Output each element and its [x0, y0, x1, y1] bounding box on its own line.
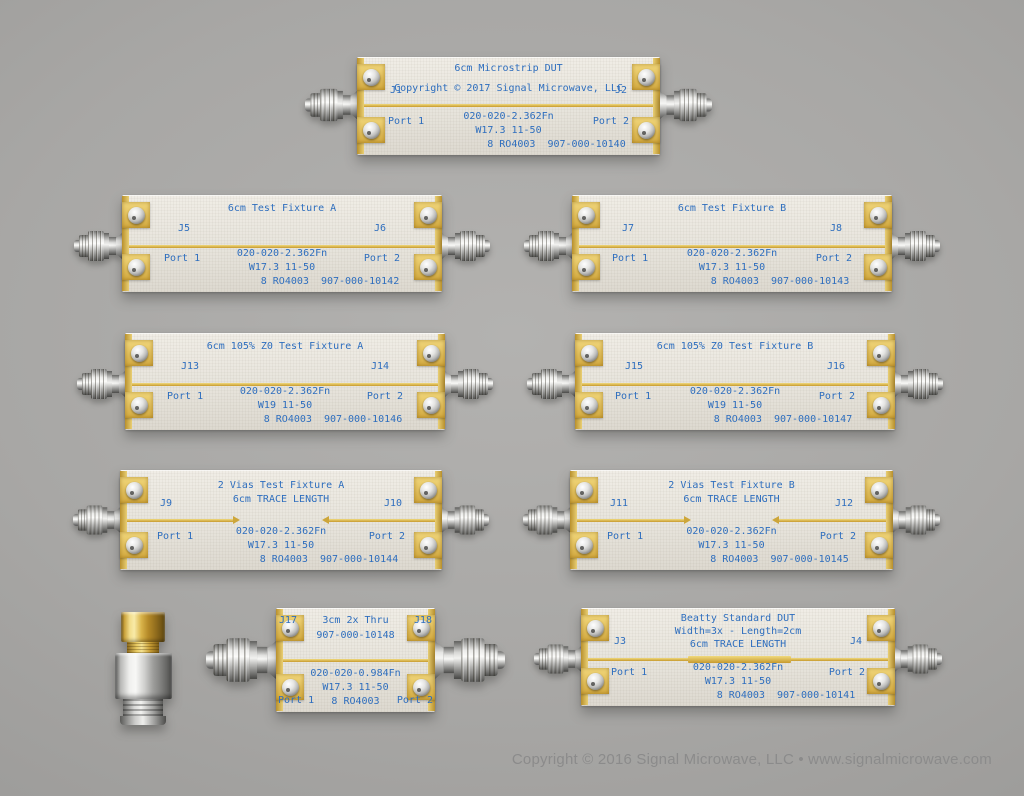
connector-tip — [929, 373, 938, 395]
material-serial: 8 RO4003 907-000-10140 — [405, 139, 708, 150]
jack-label-right: J4 — [850, 636, 862, 647]
connector-barrel — [913, 369, 929, 399]
board-title: 6cm 105% Z0 Test Fixture B — [575, 341, 895, 352]
material-serial: 8 RO4003 907-000-10146 — [173, 414, 493, 425]
connector-barrel — [461, 638, 484, 682]
connector-tip — [926, 509, 935, 531]
material-serial: 8 RO4003 907-000-10144 — [168, 554, 490, 565]
test-fixture-assembly: 6cm Microstrip DUT Copyright © 2017 Sign… — [305, 57, 712, 155]
coax-connector-right — [435, 638, 505, 682]
width-code: W17.3 11-50 — [357, 125, 660, 136]
connector-tip — [79, 235, 88, 257]
part-number: 020-020-2.362Fn — [122, 248, 442, 259]
adapter-gold-hex-nut — [121, 612, 165, 642]
jack-label-left: J15 — [625, 361, 643, 372]
coax-connector-left — [534, 644, 581, 673]
product-photo-scene: Copyright © 2016 Signal Microwave, LLC •… — [0, 0, 1024, 796]
coax-connector-right — [893, 505, 940, 534]
test-fixture-assembly: 2 Vias Test Fixture B 6cm TRACE LENGTH J… — [523, 470, 940, 570]
connector-neck — [451, 375, 458, 393]
connector-tip — [213, 644, 226, 676]
pcb-board: 3cm 2x Thru 907-000-10148 J17 J18 Port 1… — [276, 608, 435, 712]
connector-neck — [899, 511, 906, 529]
jack-label-left: J3 — [614, 636, 626, 647]
jack-label-left: J13 — [181, 361, 199, 372]
jack-label-right: J8 — [830, 223, 842, 234]
connector-tip — [697, 93, 707, 117]
connector-tip — [529, 235, 538, 257]
board-title: 3cm 2x Thru — [276, 615, 435, 626]
connector-end-cap — [935, 240, 940, 252]
jack-label-right: J14 — [371, 361, 389, 372]
board-title: 6cm 105% Z0 Test Fixture A — [125, 341, 445, 352]
pcb-board: 6cm Test Fixture B J7 J8 Port 1 Port 2 0… — [572, 195, 892, 292]
connector-barrel — [460, 231, 476, 261]
coax-connector-left — [524, 231, 572, 261]
coax-connector-right — [895, 644, 942, 673]
connector-tip — [479, 373, 488, 395]
connector-end-cap — [485, 240, 490, 252]
connector-end-cap — [488, 378, 493, 390]
microstrip-trace-right — [329, 519, 435, 522]
connector-neck — [559, 237, 566, 255]
connector-barrel — [679, 89, 696, 121]
test-fixture-assembly: Beatty Standard DUT Width=3x - Length=2c… — [534, 608, 942, 706]
connector-barrel — [541, 369, 557, 399]
board-title: 6cm Microstrip DUT — [357, 63, 660, 74]
material-serial: 8 RO4003 907-000-10147 — [623, 414, 943, 425]
connector-tip — [476, 235, 485, 257]
jack-label-right: J12 — [835, 498, 853, 509]
adapter-base-ring — [120, 716, 166, 725]
width-code: W17.3 11-50 — [120, 540, 442, 551]
connector-neck — [901, 375, 908, 393]
adapter-threaded-barrel — [123, 699, 163, 716]
microstrip-trace-left — [577, 519, 684, 522]
connector-flange — [435, 641, 444, 679]
board-subtitle-2: 6cm TRACE LENGTH — [581, 639, 895, 650]
connector-barrel — [320, 89, 337, 121]
jack-label-right: J16 — [827, 361, 845, 372]
connector-tip — [926, 235, 935, 257]
adapter-gold-collar — [127, 642, 159, 653]
coax-connector-left — [523, 505, 570, 534]
connector-barrel — [463, 369, 479, 399]
width-code: W17.3 11-50 — [122, 262, 442, 273]
connector-barrel — [226, 638, 249, 682]
connector-tip — [310, 93, 320, 117]
jack-label-right: J6 — [374, 223, 386, 234]
coax-connector-right — [442, 505, 489, 534]
board-title: 2 Vias Test Fixture A — [120, 480, 442, 491]
coax-connector-left — [527, 369, 575, 399]
width-code: W19 11-50 — [125, 400, 445, 411]
connector-end-cap — [938, 378, 943, 390]
board-title: Beatty Standard DUT — [581, 613, 895, 624]
connector-barrel — [537, 505, 553, 534]
jack-label-right: J2 — [615, 85, 627, 96]
connector-barrel — [910, 231, 926, 261]
material-serial: 8 RO4003 907-000-10143 — [620, 276, 940, 287]
part-number: 020-020-0.984Fn — [276, 668, 435, 679]
connector-tip — [539, 648, 548, 670]
board-subtitle: 907-000-10148 — [276, 630, 435, 641]
board-title: 2 Vias Test Fixture B — [570, 480, 893, 491]
connector-barrel — [87, 505, 103, 534]
coax-connector-right — [442, 231, 490, 261]
part-number: 020-020-2.362Fn — [125, 386, 445, 397]
connector-tip — [475, 509, 484, 531]
connector-tip — [82, 373, 91, 395]
test-fixture-assembly: 3cm 2x Thru 907-000-10148 J17 J18 Port 1… — [206, 608, 505, 712]
adapter-silver-hex-body — [115, 653, 172, 699]
coax-connector-right — [892, 231, 940, 261]
coax-connector-right — [660, 89, 712, 121]
sma-adapter — [113, 612, 173, 725]
connector-tip — [78, 509, 87, 531]
jack-label-left: J1 — [390, 85, 402, 96]
connector-barrel — [91, 369, 107, 399]
jack-label-left: J5 — [178, 223, 190, 234]
width-code: W17.3 11-50 — [276, 682, 435, 693]
part-number: 020-020-2.362Fn — [120, 526, 442, 537]
part-number: 020-020-2.362Fn — [575, 386, 895, 397]
pcb-board: 6cm 105% Z0 Test Fixture B J15 J16 Port … — [575, 333, 895, 430]
board-subtitle: Width=3x - Length=2cm — [581, 626, 895, 637]
connector-end-cap — [937, 653, 942, 665]
connector-neck — [444, 647, 454, 673]
coax-connector-left — [73, 505, 120, 534]
jack-label-left: J17 — [279, 615, 297, 626]
jack-label-right: J10 — [384, 498, 402, 509]
connector-ring — [250, 641, 257, 679]
connector-neck — [343, 95, 351, 114]
connector-tip — [528, 509, 537, 531]
pcb-board: 6cm Test Fixture A J5 J6 Port 1 Port 2 0… — [122, 195, 442, 292]
material-serial: 8 RO4003 907-000-10142 — [170, 276, 490, 287]
width-code: W17.3 11-50 — [570, 540, 893, 551]
connector-ring — [454, 641, 461, 679]
board-title: 6cm Test Fixture B — [572, 203, 892, 214]
connector-barrel — [460, 505, 476, 534]
test-fixture-assembly: 2 Vias Test Fixture A 6cm TRACE LENGTH J… — [73, 470, 489, 570]
material-serial: 8 RO4003 907-000-10145 — [618, 554, 941, 565]
pcb-board: 6cm 105% Z0 Test Fixture A J13 J14 Port … — [125, 333, 445, 430]
board-title: 6cm Test Fixture A — [122, 203, 442, 214]
material-serial: 8 RO4003 907-000-10141 — [629, 690, 943, 701]
pcb-board: 2 Vias Test Fixture B 6cm TRACE LENGTH J… — [570, 470, 893, 570]
connector-neck — [562, 375, 569, 393]
part-number: 020-020-2.362Fn — [581, 662, 895, 673]
jack-label-left: J7 — [622, 223, 634, 234]
microstrip-trace — [364, 104, 653, 107]
connector-neck — [109, 237, 116, 255]
connector-neck — [107, 511, 114, 529]
connector-end-cap — [206, 651, 213, 668]
part-number: 020-020-2.362Fn — [572, 248, 892, 259]
connector-tip — [532, 373, 541, 395]
pcb-board: 6cm Microstrip DUT Copyright © 2017 Sign… — [357, 57, 660, 155]
jack-label-left: J9 — [160, 498, 172, 509]
connector-end-cap — [707, 99, 712, 112]
material-serial: 8 RO4003 — [276, 696, 435, 707]
test-fixture-assembly: 6cm Test Fixture B J7 J8 Port 1 Port 2 0… — [524, 195, 940, 292]
connector-tip — [485, 644, 498, 676]
connector-neck — [448, 511, 455, 529]
connector-end-cap — [498, 651, 505, 668]
coax-connector-left — [305, 89, 357, 121]
coax-connector-left — [74, 231, 122, 261]
connector-barrel — [88, 231, 104, 261]
connector-barrel — [538, 231, 554, 261]
connector-tip — [928, 648, 937, 670]
connector-neck — [666, 95, 674, 114]
connector-neck — [568, 650, 575, 668]
pcb-board: Beatty Standard DUT Width=3x - Length=2c… — [581, 608, 895, 706]
coax-connector-right — [895, 369, 943, 399]
microstrip-trace-left — [127, 519, 233, 522]
connector-neck — [901, 650, 908, 668]
connector-neck — [112, 375, 119, 393]
connector-neck — [448, 237, 455, 255]
jack-label-left: J11 — [610, 498, 628, 509]
connector-neck — [557, 511, 564, 529]
width-code: W17.3 11-50 — [572, 262, 892, 273]
part-number: 020-020-2.362Fn — [357, 111, 660, 122]
microstrip-trace — [283, 659, 428, 662]
connector-end-cap — [935, 514, 940, 526]
jack-label-right: J18 — [414, 615, 432, 626]
connector-barrel — [548, 644, 564, 673]
pcb-board: 2 Vias Test Fixture A 6cm TRACE LENGTH J… — [120, 470, 442, 570]
microstrip-trace-right — [779, 519, 886, 522]
connector-barrel — [911, 505, 927, 534]
connector-neck — [898, 237, 905, 255]
connector-flange — [267, 641, 276, 679]
connector-end-cap — [484, 514, 489, 526]
part-number: 020-020-2.362Fn — [570, 526, 893, 537]
coax-connector-right — [445, 369, 493, 399]
test-fixture-assembly: 6cm Test Fixture A J5 J6 Port 1 Port 2 0… — [74, 195, 490, 292]
photo-copyright: Copyright © 2016 Signal Microwave, LLC •… — [512, 751, 992, 768]
test-fixture-assembly: 6cm 105% Z0 Test Fixture B J15 J16 Port … — [527, 333, 943, 430]
connector-barrel — [913, 644, 929, 673]
connector-neck — [257, 647, 267, 673]
coax-connector-left — [206, 638, 276, 682]
test-fixture-assembly: 6cm 105% Z0 Test Fixture A J13 J14 Port … — [77, 333, 493, 430]
width-code: W19 11-50 — [575, 400, 895, 411]
width-code: W17.3 11-50 — [581, 676, 895, 687]
coax-connector-left — [77, 369, 125, 399]
